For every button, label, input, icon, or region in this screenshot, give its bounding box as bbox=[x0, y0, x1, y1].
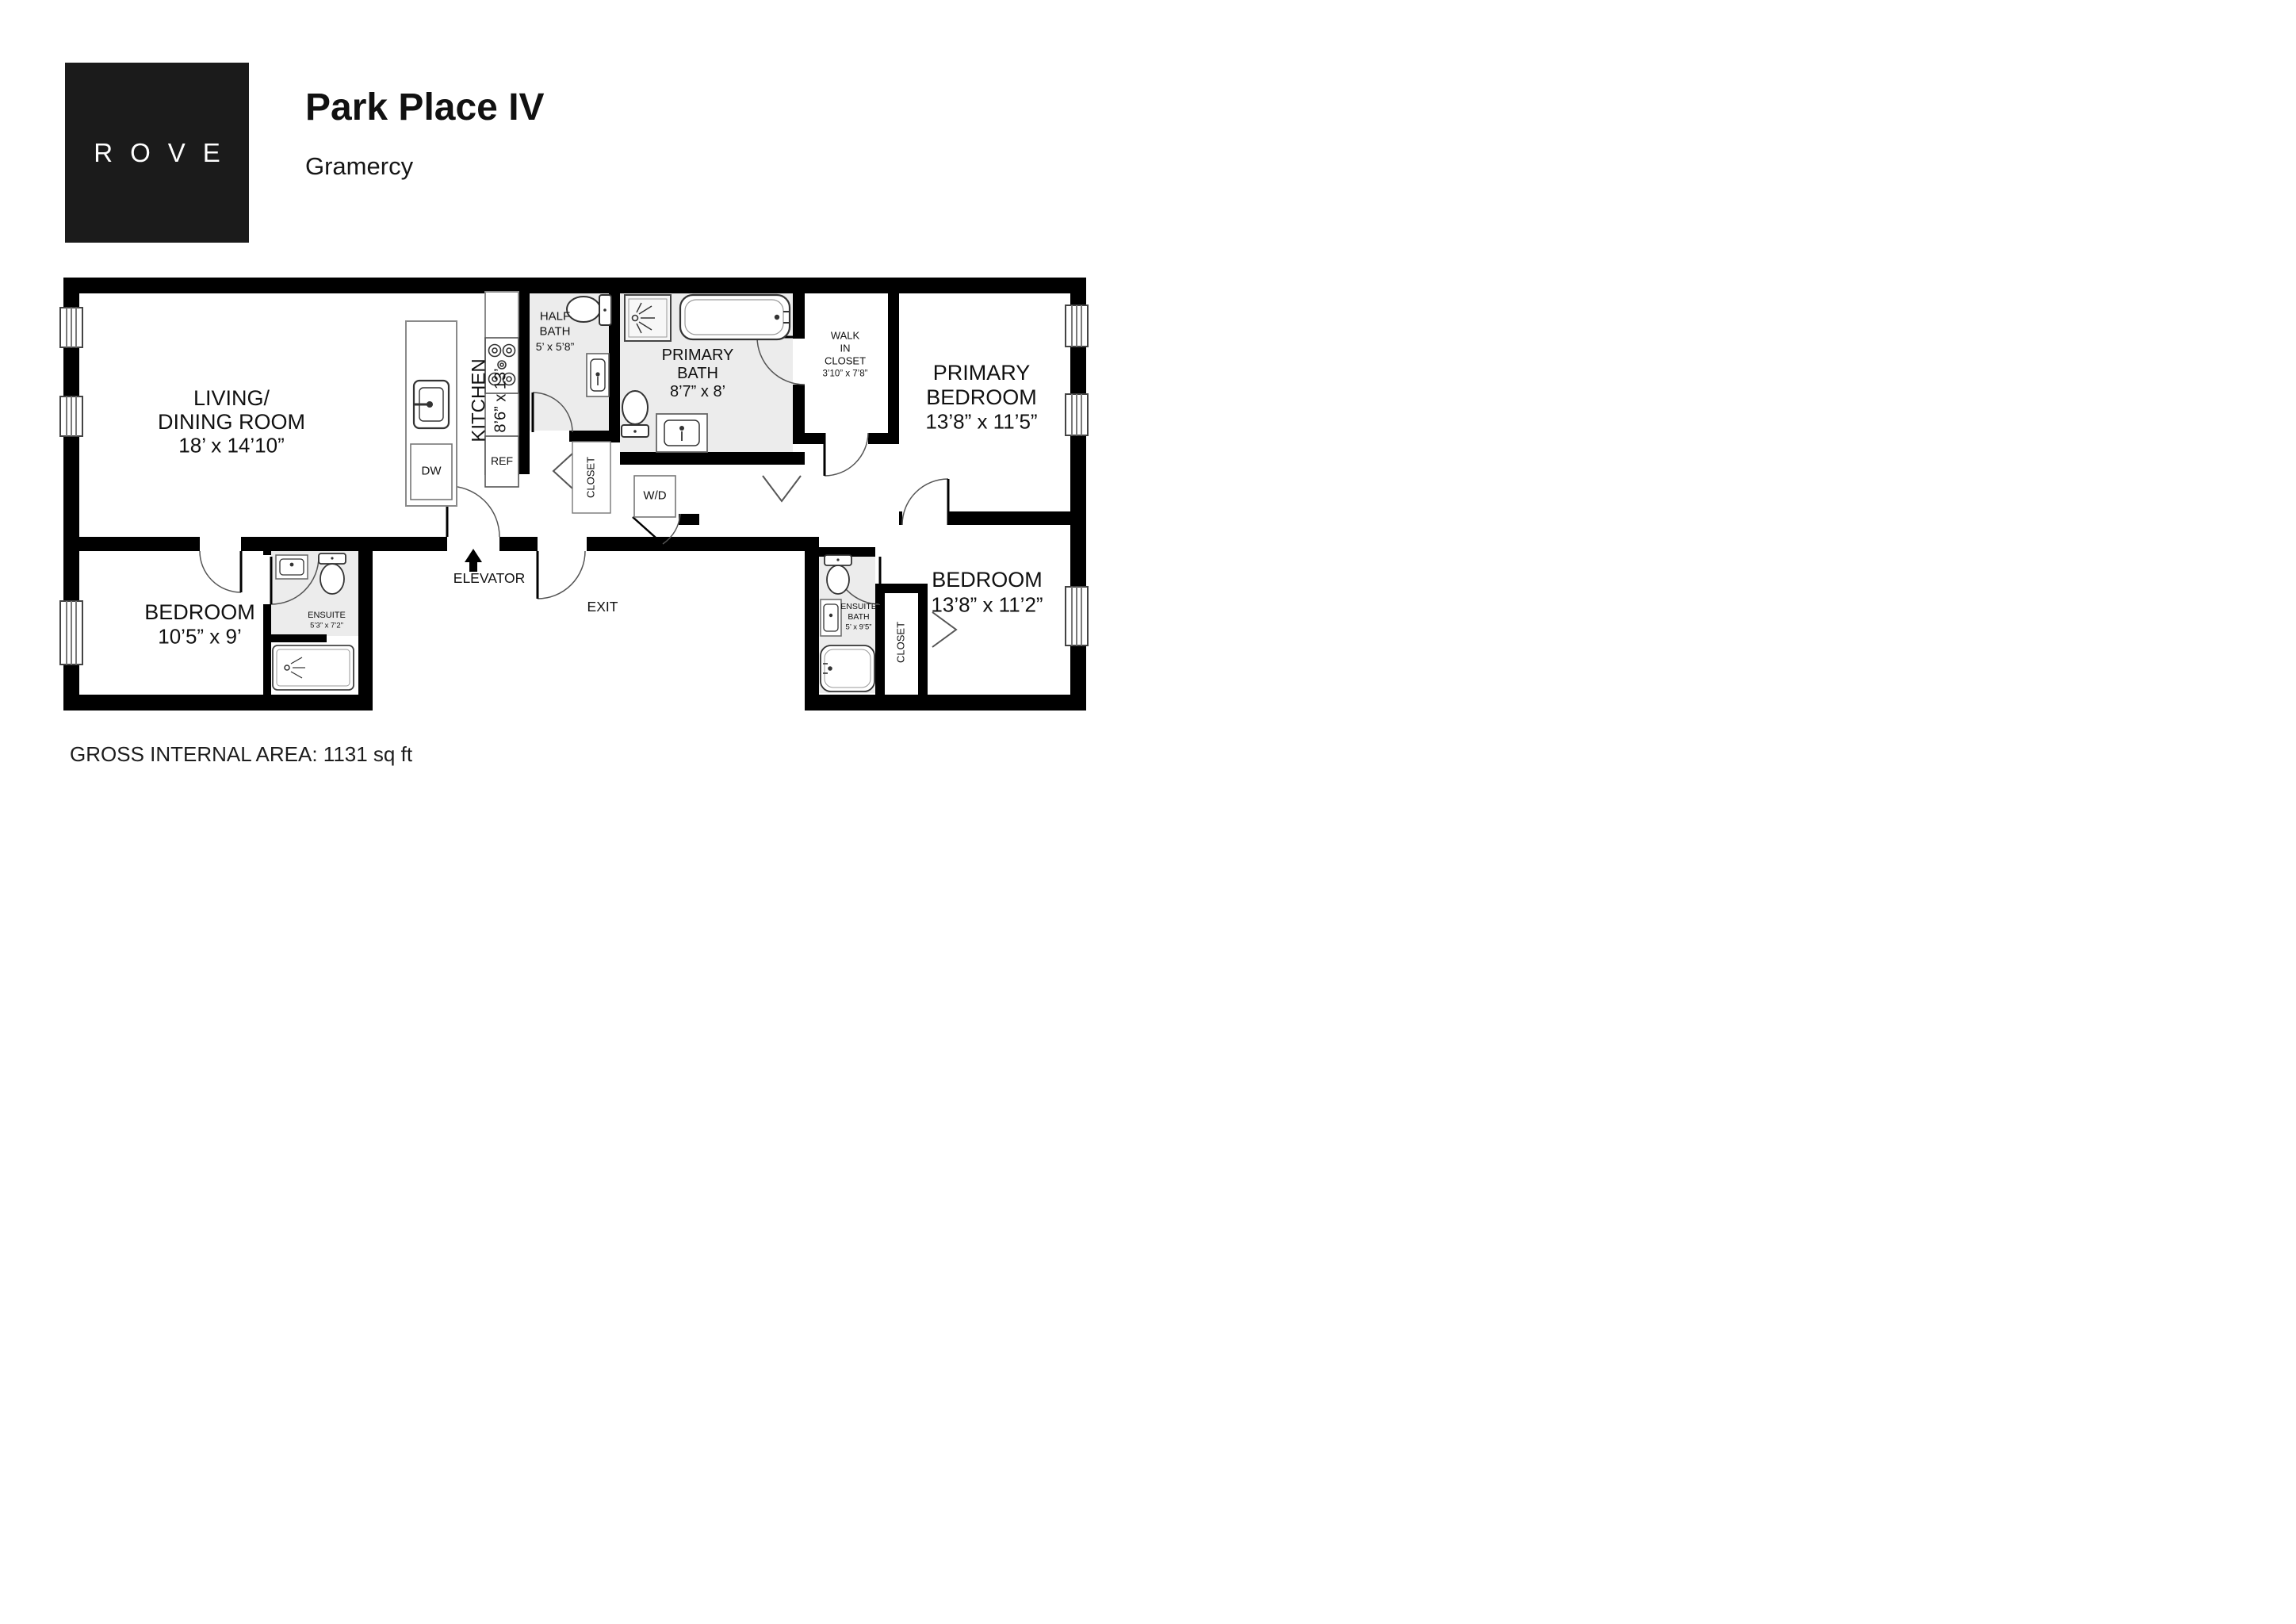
window-icon bbox=[60, 601, 82, 665]
toilet-icon bbox=[825, 555, 851, 594]
primary-bedroom-label: BEDROOM bbox=[926, 385, 1037, 409]
wall-ensuite-left-b bbox=[263, 604, 271, 695]
wall-wic-left-b bbox=[793, 385, 805, 444]
wall-wic-bottom-a bbox=[805, 433, 825, 444]
wall-shower-divider bbox=[271, 634, 327, 642]
refrigerator-label: REF bbox=[491, 455, 513, 468]
walk-in-closet-dims: 3’10” x 7’8” bbox=[823, 370, 868, 380]
window-icon bbox=[1066, 394, 1088, 435]
gross-internal-area: GROSS INTERNAL AREA: 1131 sq ft bbox=[70, 742, 412, 767]
wall-wic-bottom-b bbox=[868, 433, 899, 444]
bifold-door-closet-right bbox=[932, 612, 956, 647]
living-room-label: LIVING/ bbox=[193, 386, 270, 410]
elevator-arrow-icon bbox=[465, 549, 482, 572]
bedroom-left-label: BEDROOM bbox=[144, 600, 255, 624]
wall-wd-stub bbox=[679, 514, 699, 525]
bedroom-right-dims: 13’8” x 11’2” bbox=[931, 593, 1043, 616]
bedroom-left-dims: 10’5” x 9’ bbox=[158, 625, 242, 648]
door-bedroom-left bbox=[200, 551, 241, 592]
door-primary-bedroom bbox=[902, 479, 948, 525]
walk-in-closet-label: IN bbox=[840, 343, 851, 355]
wall-closet-right-left bbox=[875, 593, 885, 695]
walk-in-closet-label: CLOSET bbox=[825, 356, 866, 368]
opening-bedroom-left bbox=[200, 536, 241, 552]
window-icon bbox=[1066, 305, 1088, 347]
primary-bath-dims: 8’7” x 8’ bbox=[670, 383, 725, 400]
floor-plan: LIVING/ DINING ROOM 18’ x 14’10” KITCHEN… bbox=[0, 0, 1148, 812]
door-exit bbox=[538, 551, 585, 599]
window-icon bbox=[60, 308, 82, 347]
living-room-label: DINING ROOM bbox=[158, 410, 305, 434]
wall-bottom-left-block bbox=[63, 695, 373, 710]
half-bath-label: BATH bbox=[540, 326, 571, 339]
ensuite-left-dims: 5’3” x 7’2” bbox=[310, 622, 343, 631]
sink-icon bbox=[821, 599, 841, 636]
bathtub-icon bbox=[821, 645, 874, 691]
primary-bath-label: BATH bbox=[677, 365, 718, 382]
closet-right-label: CLOSET bbox=[896, 622, 908, 663]
kitchen-label: KITCHEN bbox=[468, 358, 492, 442]
wall-right-block-left bbox=[805, 551, 819, 695]
wall-ensuite-left-a bbox=[263, 551, 271, 555]
wall-top bbox=[63, 278, 1086, 293]
exit-label: EXIT bbox=[587, 599, 618, 615]
sink-icon bbox=[587, 354, 609, 396]
primary-bath-label: PRIMARY bbox=[662, 347, 734, 364]
window-icon bbox=[60, 396, 82, 436]
shower-icon bbox=[273, 645, 354, 690]
toilet-icon bbox=[622, 391, 649, 437]
sink-icon bbox=[656, 414, 707, 452]
shower-icon bbox=[625, 295, 671, 341]
washer-dryer-label: W/D bbox=[643, 490, 666, 504]
hall-closet-label: CLOSET bbox=[586, 457, 598, 498]
wall-wic-right bbox=[888, 292, 899, 444]
wall-left-block-right bbox=[358, 551, 373, 695]
primary-bedroom-label: PRIMARY bbox=[933, 361, 1031, 385]
wall-wic-left-a bbox=[793, 292, 805, 339]
bifold-door-hall bbox=[763, 476, 801, 501]
wall-closet-right-right bbox=[918, 593, 928, 695]
wall-halfbath-bottom bbox=[569, 431, 610, 442]
ensuite-left-label: ENSUITE bbox=[308, 611, 346, 620]
floor-plan-page: ROVE Park Place IV Gramercy bbox=[0, 0, 1148, 812]
wall-closet-right-top bbox=[875, 584, 928, 593]
wall-bottom-right-block bbox=[805, 695, 1086, 710]
ensuite-right-dims: 5’ x 9’5” bbox=[846, 624, 872, 633]
elevator-label: ELEVATOR bbox=[453, 571, 525, 587]
window-icon bbox=[1066, 587, 1088, 645]
ensuite-right-label: BATH bbox=[848, 613, 869, 622]
wall-pbr-bottom-b bbox=[948, 511, 1073, 525]
opening-exit bbox=[538, 536, 587, 552]
dishwasher-label: DW bbox=[422, 465, 442, 479]
toilet-icon bbox=[319, 553, 346, 594]
half-bath-dims: 5’ x 5’8” bbox=[536, 341, 575, 354]
sink-icon bbox=[276, 555, 308, 579]
bathtub-icon bbox=[680, 295, 790, 339]
bifold-door-hall-closet bbox=[553, 454, 572, 488]
kitchen-dims: 8’6” x 13’ bbox=[492, 358, 511, 442]
kitchen-sink-icon bbox=[414, 381, 449, 428]
walk-in-closet-label: WALK bbox=[831, 331, 859, 343]
half-bath-label: HALF bbox=[540, 311, 570, 324]
primary-bedroom-dims: 13’8” x 11’5” bbox=[925, 410, 1037, 433]
wall-primarybath-bottom bbox=[620, 452, 805, 465]
door-walk-in-closet bbox=[825, 433, 868, 476]
living-room-dims: 18’ x 14’10” bbox=[178, 434, 284, 457]
ensuite-right-label: ENSUITE bbox=[840, 603, 877, 612]
bedroom-right-label: BEDROOM bbox=[932, 568, 1043, 592]
